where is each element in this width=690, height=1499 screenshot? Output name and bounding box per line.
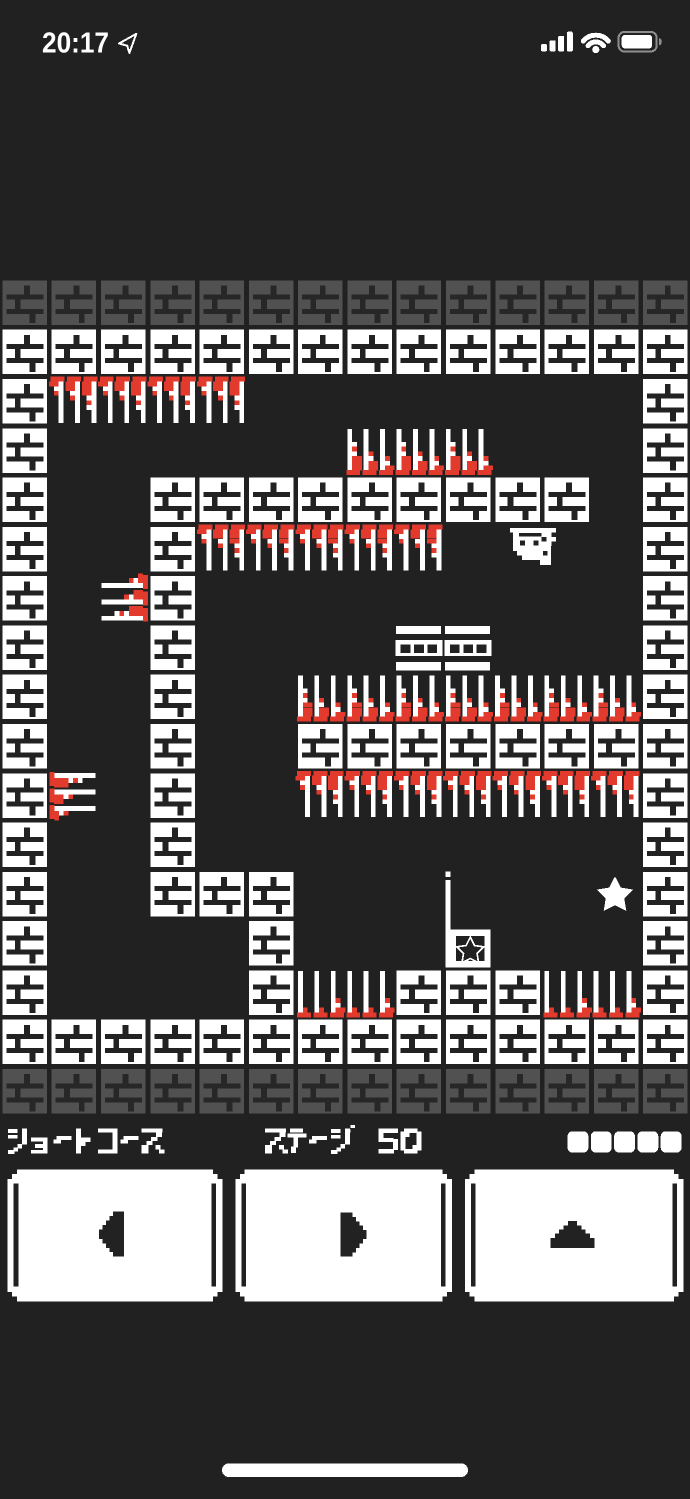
svg-text:20:17: 20:17 [42, 28, 109, 60]
